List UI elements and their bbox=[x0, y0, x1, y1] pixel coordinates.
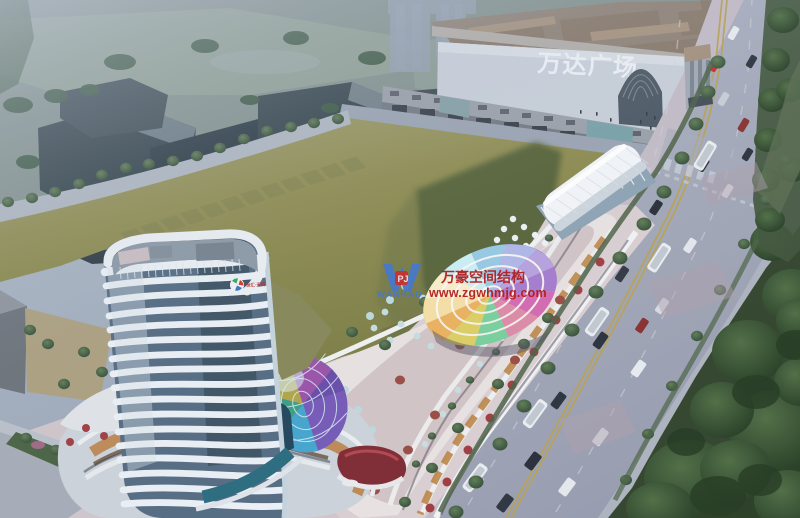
svg-text:www.zgwhmjg.com: www.zgwhmjg.com bbox=[428, 286, 547, 300]
svg-text:PJ: PJ bbox=[398, 274, 409, 284]
svg-text:万豪空间结构: 万豪空间结构 bbox=[440, 269, 525, 285]
svg-text:WANHAO: WANHAO bbox=[377, 289, 423, 299]
